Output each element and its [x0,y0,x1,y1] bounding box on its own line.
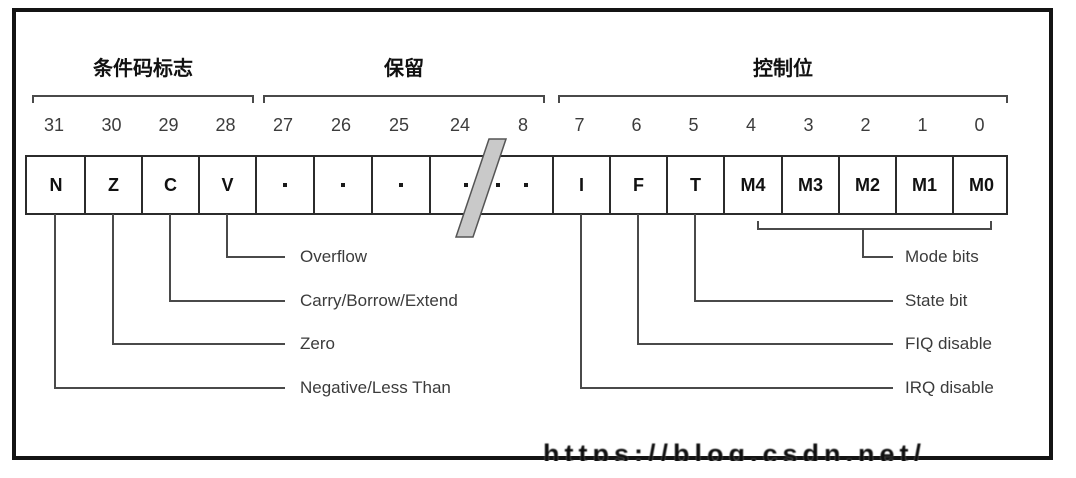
annotation-label-T: State bit [905,290,967,312]
callout-vline-Z [112,214,114,345]
callout-vline-I [580,214,582,389]
callout-hline-I [580,387,894,389]
bit-cell-M2: M2 [839,157,896,213]
bit-number-6: 6 [615,113,659,137]
bit-number-4: 4 [729,113,773,137]
bit-number-0: 0 [958,113,1002,137]
annotation-label-V: Overflow [300,246,367,268]
watermark: https://blog.csdn.net/ [543,439,1059,461]
break-slash-icon [440,126,524,248]
bit-number-31: 31 [32,113,76,137]
bracket-condition-flags [32,95,254,103]
bit-cell-T: T [667,157,724,213]
callout-vline-F [637,214,639,345]
annotation-label-I: IRQ disable [905,377,994,399]
callout-hline-Z [112,343,286,345]
callout-hline-N [54,387,285,389]
watermark-text: https://blog.csdn.net/ [543,439,926,461]
bit-cell-M3: M3 [782,157,839,213]
bit-cell-I: I [553,157,610,213]
bit-number-27: 27 [261,113,305,137]
reserved-dot [341,183,345,187]
reserved-dot [524,183,528,187]
annotation-label-C: Carry/Borrow/Extend [300,290,458,312]
bit-number-28: 28 [204,113,248,137]
group-label-condition-flags: 条件码标志 [32,56,254,82]
bit-number-3: 3 [787,113,831,137]
annotation-label-Z: Zero [300,333,335,355]
bit-cell-M1: M1 [896,157,953,213]
bit-number-1: 1 [901,113,945,137]
bit-number-2: 2 [844,113,888,137]
bit-number-26: 26 [319,113,363,137]
bracket-control-bits [558,95,1008,103]
bit-cell-F: F [610,157,667,213]
callout-vline-T [694,214,696,302]
bit-number-7: 7 [558,113,602,137]
bit-cell-Z: Z [85,157,142,213]
mode-bits-bracket [757,221,992,230]
bit-cell-M0: M0 [953,157,1010,213]
callout-hline-C [169,300,286,302]
group-label-reserved: 保留 [263,56,545,82]
annotation-label-F: FIQ disable [905,333,992,355]
bit-cell-C: C [142,157,199,213]
cell-separator [429,157,431,213]
reserved-dot [283,183,287,187]
callout-hline-F [637,343,894,345]
cell-separator [313,157,315,213]
callout-hline-V [226,256,286,258]
bit-cell-M4: M4 [724,157,782,213]
bit-cell-N: N [27,157,85,213]
group-label-control-bits: 控制位 [558,56,1008,82]
bit-number-25: 25 [377,113,421,137]
bit-cell-V: V [199,157,256,213]
callout-vline-N [54,214,56,389]
callout-hline-M4-M0 [862,256,893,258]
callout-vline-C [169,214,171,302]
reserved-dot [399,183,403,187]
bracket-reserved [263,95,545,103]
annotation-label-M4-M0: Mode bits [905,246,979,268]
bit-number-5: 5 [672,113,716,137]
callout-hline-T [694,300,894,302]
callout-vline-V [226,214,228,258]
cell-separator [371,157,373,213]
cell-separator [255,157,257,213]
register-bit-diagram: 条件码标志 保留 控制位 3130292827262524876543210 N… [0,0,1076,478]
annotation-label-N: Negative/Less Than [300,377,451,399]
callout-vline-M4-M0 [862,229,864,258]
bit-number-29: 29 [147,113,191,137]
bit-number-30: 30 [90,113,134,137]
